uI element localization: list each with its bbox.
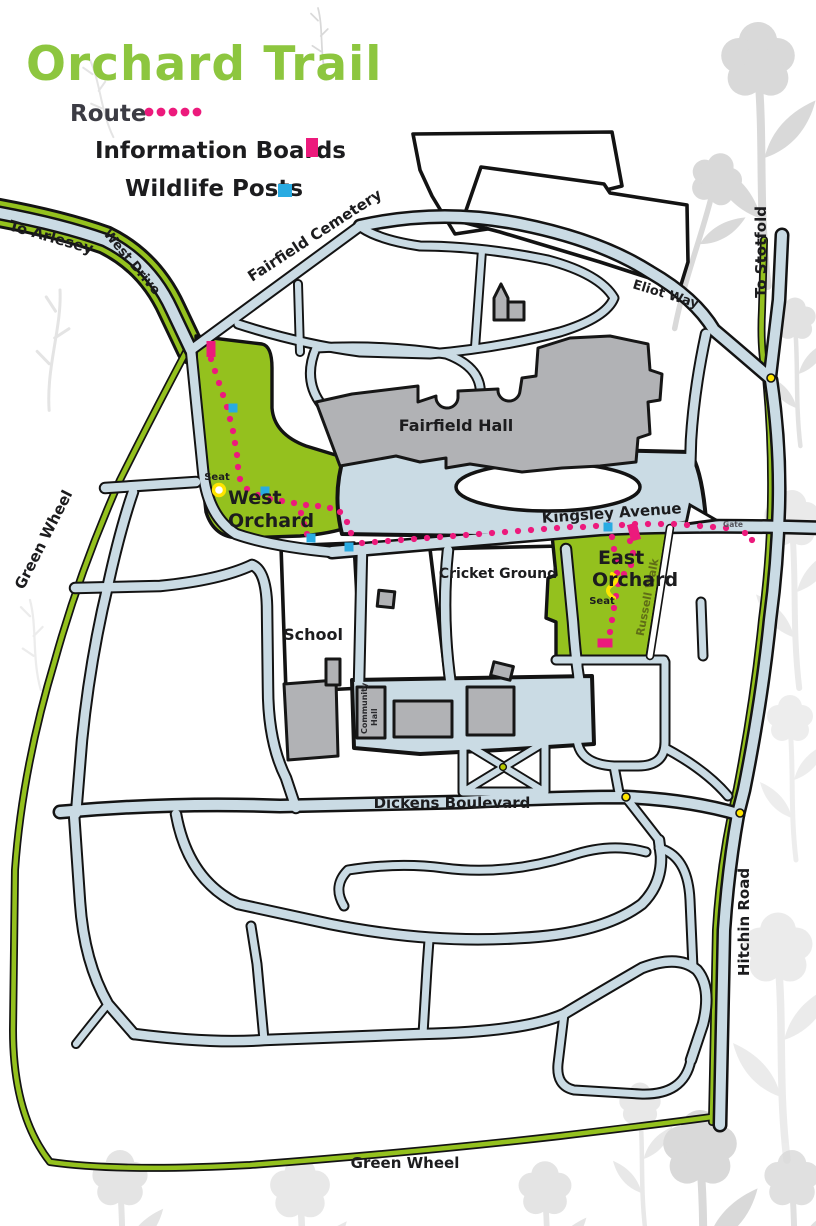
roundabout-icon: [736, 809, 744, 817]
label-west-orchard-2: Orchard: [228, 510, 314, 532]
school-field: [281, 543, 362, 692]
label-community-hall-1: Community: [360, 682, 369, 734]
small-building-cricket: [491, 662, 514, 680]
park-center-dot: [500, 764, 507, 771]
wildlife-post-icon: [307, 534, 316, 543]
label-dickens-boulevard: Dickens Boulevard: [374, 794, 531, 812]
label-east-orchard-1: East: [598, 547, 644, 569]
orchard-trail-map-page: To Arlesey West Drive Fairfield Cemetery…: [0, 0, 816, 1226]
label-community-hall-2: Hall: [370, 708, 379, 726]
wildlife-post-icon: [604, 523, 613, 532]
label-gate: Gate: [723, 520, 743, 529]
roundabout-icon: [767, 374, 775, 382]
road-fills: [0, 212, 816, 1125]
hall-side-building: [394, 701, 452, 737]
school-building: [284, 680, 338, 760]
information-board-icon: [207, 341, 216, 357]
label-to-stotfold: To Stotfold: [752, 206, 770, 298]
legend-wildlife-post-icon: [278, 184, 292, 197]
small-building-west: [377, 590, 395, 608]
page-title: Orchard Trail: [26, 37, 382, 92]
label-hitchin-road: Hitchin Road: [735, 868, 753, 976]
title-legend: Orchard Trail Route Information Boards W…: [26, 37, 382, 202]
roundabout-icon: [622, 793, 630, 801]
label-school: School: [283, 625, 343, 644]
church-annex: [508, 302, 524, 320]
wildlife-post-icon: [229, 404, 238, 413]
label-cricket-ground: Cricket Ground: [439, 566, 557, 582]
legend-route-label: Route: [70, 101, 146, 127]
school-annex: [326, 659, 340, 685]
seat-west-icon: [214, 485, 225, 496]
church-building: [494, 284, 508, 320]
label-seat-east: Seat: [589, 596, 615, 607]
pavilion-building: [467, 687, 514, 735]
legend-wildlife-label: Wildlife Posts: [125, 176, 303, 202]
label-green-wheel-bottom: Green Wheel: [351, 1154, 460, 1172]
label-seat-west: Seat: [204, 472, 230, 483]
label-green-wheel-left: Green Wheel: [11, 487, 76, 592]
orchard-trail-map: To Arlesey West Drive Fairfield Cemetery…: [0, 0, 816, 1226]
label-west-orchard-1: West: [228, 487, 282, 509]
label-fairfield-hall: Fairfield Hall: [399, 416, 514, 435]
legend-route-dots-icon: [145, 108, 202, 117]
wildlife-post-icon: [345, 543, 354, 552]
information-board-icon: [598, 639, 613, 648]
label-east-orchard-2: Orchard: [592, 569, 678, 591]
legend-info-board-icon: [306, 138, 318, 157]
